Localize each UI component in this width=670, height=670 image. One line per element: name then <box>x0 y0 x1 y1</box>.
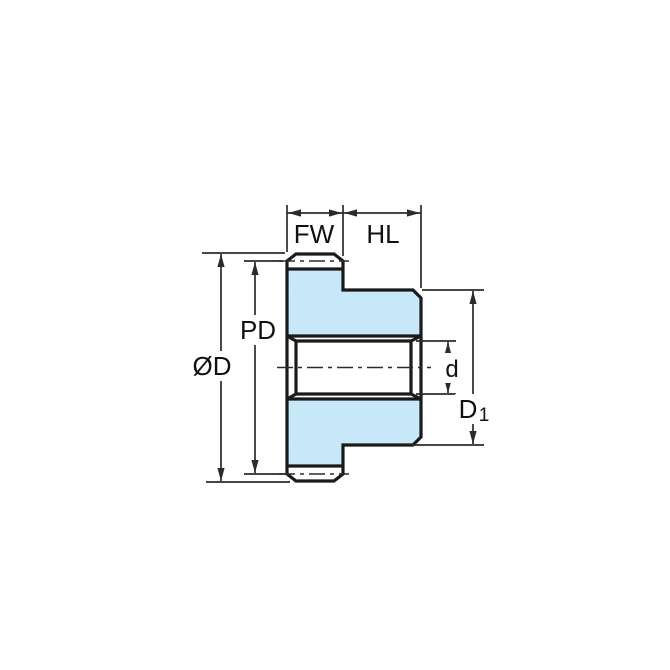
drawing-svg: FW HL ØD PD <box>0 0 670 670</box>
face-width-label: FW <box>294 219 335 249</box>
hub-length-label: HL <box>366 219 399 249</box>
fw-arrow-right <box>329 209 342 216</box>
od-arrow-bottom <box>217 468 224 481</box>
d1-arrow-top <box>469 291 476 304</box>
d-dimension: d <box>416 341 462 394</box>
bore-diameter-label: d <box>445 356 458 383</box>
pitch-diameter-label: PD <box>240 315 276 345</box>
outside-diameter-label: ØD <box>193 351 232 381</box>
fw-arrow-left <box>288 209 301 216</box>
pd-arrow-bottom <box>251 460 258 473</box>
hub-diameter-subscript: 1 <box>479 405 490 426</box>
od-arrow-top <box>217 254 224 267</box>
hl-arrow-right <box>407 209 420 216</box>
pd-arrow-top <box>251 262 258 275</box>
od-dimension: ØD <box>191 253 290 482</box>
gear-technical-drawing: FW HL ØD PD <box>0 0 670 670</box>
hub-diameter-label: D <box>459 394 478 424</box>
d1-arrow-bottom <box>469 431 476 444</box>
hl-arrow-left <box>344 209 357 216</box>
